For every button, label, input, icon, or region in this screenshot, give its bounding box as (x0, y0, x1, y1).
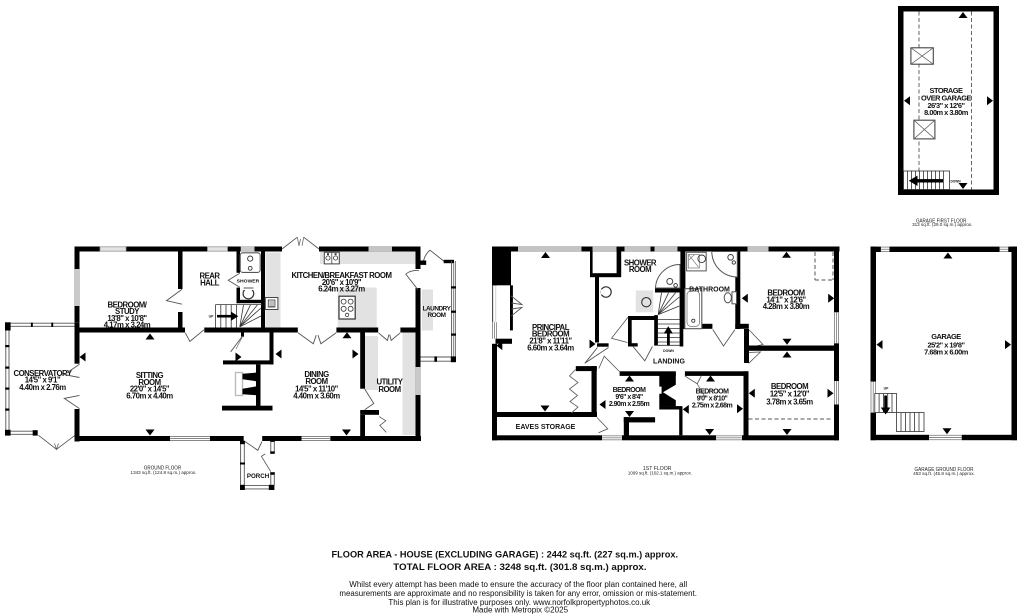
svg-text:EAVES STORAGE: EAVES STORAGE (516, 424, 576, 431)
svg-text:TOTAL FLOOR AREA : 3248 sq.ft.: TOTAL FLOOR AREA : 3248 sq.ft. (301.8 sq… (393, 561, 646, 572)
svg-text:ROOM: ROOM (629, 265, 651, 274)
svg-text:6.24m x 3.27m: 6.24m x 3.27m (318, 285, 365, 294)
svg-text:6.60m x 3.64m: 6.60m x 3.64m (527, 344, 574, 353)
svg-text:4.17m x 3.24m: 4.17m x 3.24m (104, 321, 151, 330)
svg-text:ROOM: ROOM (378, 385, 400, 394)
svg-text:BEDROOM: BEDROOM (696, 389, 729, 396)
svg-text:1099 sq.ft. (102.1 sq.m.) appr: 1099 sq.ft. (102.1 sq.m.) approx. (628, 470, 692, 475)
svg-text:453 sq.ft. (45.8 sq.m.) approx: 453 sq.ft. (45.8 sq.m.) approx. (913, 471, 975, 476)
svg-text:2.90m x 2.55m: 2.90m x 2.55m (609, 401, 650, 408)
svg-text:LANDING: LANDING (653, 359, 685, 366)
svg-text:UP: UP (884, 387, 889, 391)
svg-text:FLOOR AREA - HOUSE (EXCLUDING: FLOOR AREA - HOUSE (EXCLUDING GARAGE) : … (332, 549, 679, 559)
svg-text:9'6" x 8'4": 9'6" x 8'4" (615, 394, 643, 401)
svg-text:HALL: HALL (200, 278, 220, 287)
svg-text:8.00m x 3.80m: 8.00m x 3.80m (924, 108, 969, 117)
svg-text:PORCH: PORCH (247, 473, 270, 480)
svg-text:1343 sq.ft. (124.8 sq.m.) appr: 1343 sq.ft. (124.8 sq.m.) approx. (131, 470, 197, 475)
svg-text:BATHROOM: BATHROOM (689, 287, 730, 294)
svg-text:Made with Metropix ©2025: Made with Metropix ©2025 (472, 605, 568, 614)
svg-text:6.70m x 4.40m: 6.70m x 4.40m (126, 392, 173, 401)
svg-text:measurements are approximate a: measurements are approximate and no resp… (339, 589, 697, 598)
svg-text:ROOM: ROOM (427, 312, 445, 319)
svg-text:4.40m x 2.76m: 4.40m x 2.76m (19, 383, 66, 392)
svg-text:313 sq.ft. (29.0 sq.m.) approx: 313 sq.ft. (29.0 sq.m.) approx. (912, 222, 972, 227)
svg-text:UP: UP (209, 314, 214, 318)
svg-text:7.68m x 6.00m: 7.68m x 6.00m (924, 347, 969, 356)
svg-text:4.40m x 3.60m: 4.40m x 3.60m (293, 392, 340, 401)
svg-text:Whilst every attempt has been: Whilst every attempt has been made to en… (349, 580, 687, 589)
svg-text:2.75m x 2.68m: 2.75m x 2.68m (692, 403, 733, 410)
svg-text:3.78m x 3.65m: 3.78m x 3.65m (766, 397, 813, 406)
svg-text:9'0" x 8'10": 9'0" x 8'10" (697, 396, 728, 403)
svg-text:DOWN: DOWN (663, 349, 674, 353)
svg-text:4.28m x 3.80m: 4.28m x 3.80m (763, 302, 810, 311)
svg-text:SHOWER: SHOWER (237, 279, 260, 284)
